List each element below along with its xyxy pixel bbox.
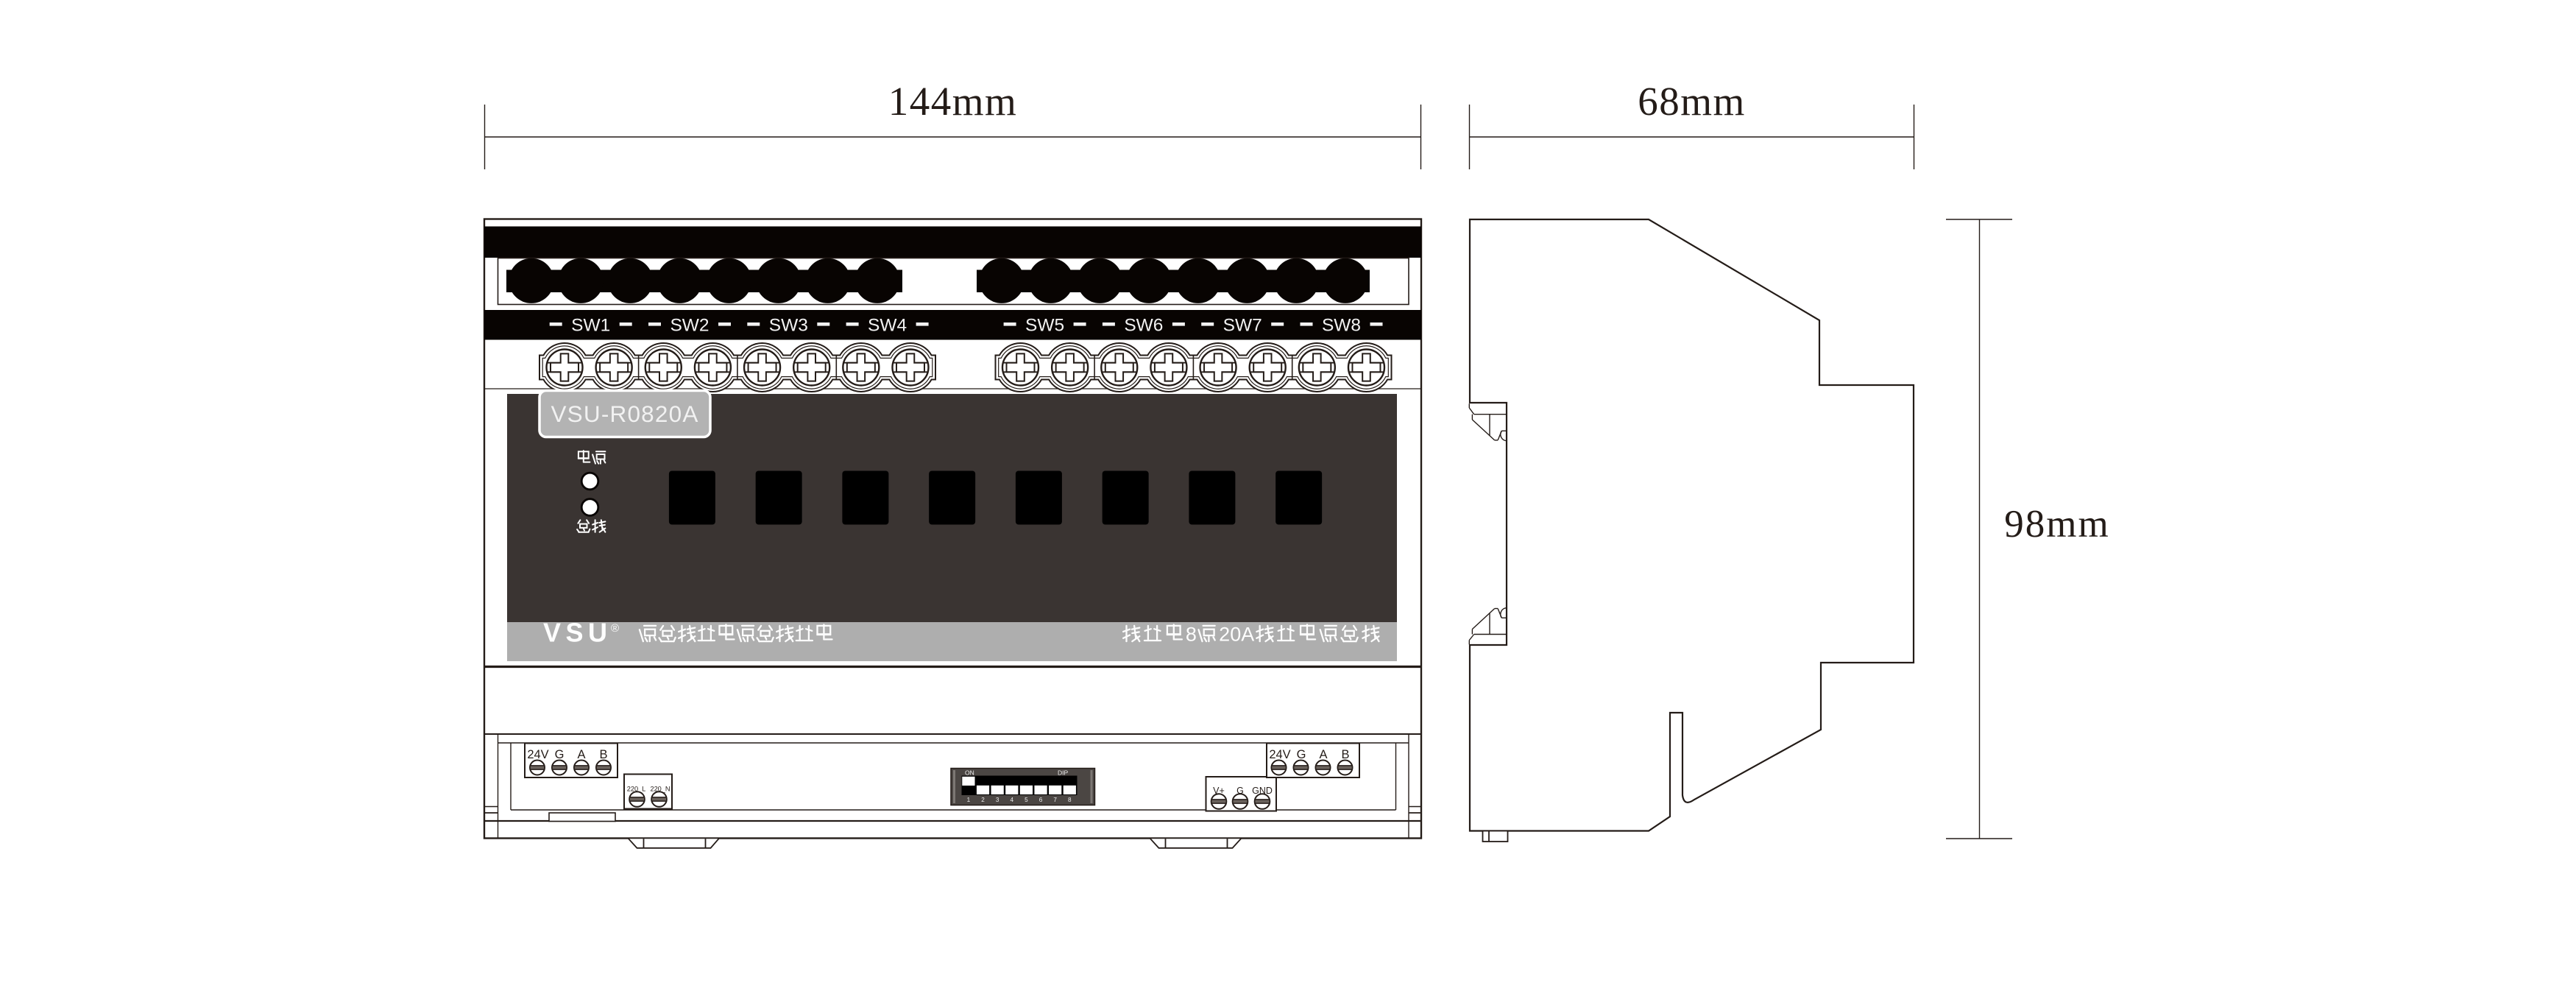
svg-text:1: 1 (967, 797, 971, 803)
svg-text:G: G (1297, 748, 1306, 761)
svg-text:2: 2 (981, 797, 985, 803)
svg-text:A: A (577, 748, 585, 761)
svg-text:4: 4 (1011, 797, 1014, 803)
svg-text:G: G (555, 748, 565, 761)
svg-text:144mm: 144mm (888, 79, 1018, 124)
svg-text:98mm: 98mm (2004, 503, 2109, 546)
svg-text:SW8: SW8 (1322, 316, 1361, 336)
svg-text:SW7: SW7 (1223, 316, 1262, 336)
svg-text:DIP: DIP (1058, 769, 1069, 777)
svg-text:5: 5 (1025, 797, 1028, 803)
svg-text:SW4: SW4 (868, 316, 907, 336)
svg-text:VSU: VSU (543, 618, 612, 648)
svg-text:24V: 24V (1269, 748, 1290, 761)
svg-text:SW2: SW2 (670, 316, 709, 336)
svg-text:8: 8 (1068, 797, 1072, 803)
svg-text:24V: 24V (527, 748, 548, 761)
svg-text:®: ® (611, 622, 619, 635)
svg-text:68mm: 68mm (1638, 79, 1746, 124)
svg-text:B: B (1341, 748, 1349, 761)
svg-text:7: 7 (1053, 797, 1057, 803)
svg-text:B: B (599, 748, 607, 761)
svg-text:A: A (1319, 748, 1327, 761)
svg-text:SW6: SW6 (1124, 316, 1163, 336)
svg-text:SW5: SW5 (1025, 316, 1064, 336)
svg-text:6: 6 (1039, 797, 1043, 803)
svg-text:SW1: SW1 (571, 316, 610, 336)
svg-text:ON: ON (965, 769, 974, 777)
svg-text:20A: 20A (1219, 624, 1254, 646)
svg-text:SW3: SW3 (769, 316, 808, 336)
svg-text:3: 3 (996, 797, 999, 803)
svg-text:8: 8 (1186, 624, 1197, 646)
svg-text:VSU-R0820A: VSU-R0820A (551, 401, 698, 427)
